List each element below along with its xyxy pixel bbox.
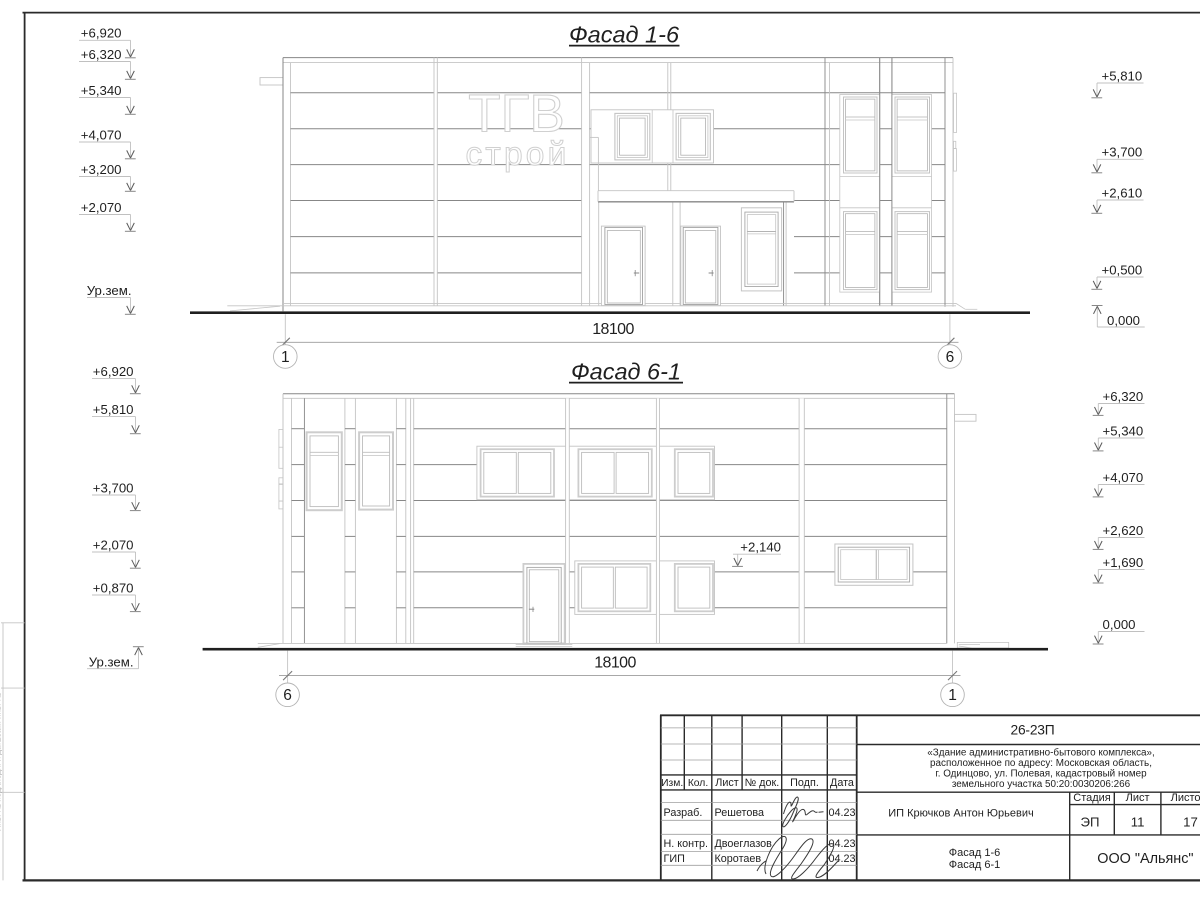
svg-text:Фасад 6-1: Фасад 6-1 <box>949 859 1000 871</box>
svg-text:Стадия: Стадия <box>1073 792 1111 804</box>
svg-text:04.23: 04.23 <box>828 853 855 865</box>
svg-text:+2,620: +2,620 <box>1103 523 1144 538</box>
svg-text:ТГВ: ТГВ <box>468 85 564 144</box>
svg-text:0,000: 0,000 <box>1103 617 1136 632</box>
svg-text:6: 6 <box>283 687 292 704</box>
svg-text:Изм.: Изм. <box>661 778 683 789</box>
svg-text:+6,320: +6,320 <box>1103 389 1144 404</box>
svg-text:Коротаев: Коротаев <box>715 853 762 865</box>
svg-text:Подп. и дата: Подп. и дата <box>0 737 3 785</box>
svg-text:+2,610: +2,610 <box>1102 185 1143 200</box>
svg-text:1: 1 <box>948 687 957 704</box>
svg-text:+4,070: +4,070 <box>81 127 122 142</box>
svg-text:Дата: Дата <box>830 777 854 789</box>
svg-text:строй: строй <box>465 136 569 173</box>
svg-text:+5,810: +5,810 <box>93 402 134 417</box>
svg-text:г. Одинцово, ул. Полевая, када: г. Одинцово, ул. Полевая, кадастровый но… <box>935 768 1147 779</box>
svg-text:11: 11 <box>1131 814 1145 829</box>
svg-text:+5,340: +5,340 <box>1103 423 1144 438</box>
svg-text:+3,700: +3,700 <box>93 480 134 495</box>
svg-text:0,000: 0,000 <box>1107 313 1140 328</box>
svg-text:Двоеглазов: Двоеглазов <box>715 838 773 850</box>
svg-text:Лист: Лист <box>715 777 739 789</box>
svg-text:земельного участка 50:20:00302: земельного участка 50:20:0030206:266 <box>952 779 1131 790</box>
svg-text:04.23: 04.23 <box>828 807 855 819</box>
svg-text:+2,070: +2,070 <box>81 200 122 215</box>
svg-text:18100: 18100 <box>592 321 634 338</box>
svg-text:ЭП: ЭП <box>1081 814 1100 829</box>
svg-text:Взам. инв. №: Взам. инв. № <box>0 692 3 742</box>
svg-text:Фасад 1-6: Фасад 1-6 <box>949 847 1000 859</box>
svg-text:+6,920: +6,920 <box>93 364 134 379</box>
svg-text:26-23П: 26-23П <box>1010 722 1054 737</box>
svg-text:+1,690: +1,690 <box>1103 555 1144 570</box>
svg-text:+2,140: +2,140 <box>740 539 781 554</box>
svg-text:Лист: Лист <box>1126 792 1150 804</box>
svg-text:расположенное по адресу: Моско: расположенное по адресу: Московская обла… <box>930 758 1152 769</box>
svg-text:Кол.: Кол. <box>688 778 708 789</box>
svg-text:Фасад 6-1: Фасад 6-1 <box>571 359 681 385</box>
svg-text:ИП Крючков Антон Юрьевич: ИП Крючков Антон Юрьевич <box>888 807 1033 819</box>
svg-text:ООО "Альянс": ООО "Альянс" <box>1097 851 1193 867</box>
svg-text:+6,320: +6,320 <box>81 47 122 62</box>
svg-text:Подп.: Подп. <box>790 777 819 789</box>
svg-text:Ур.зем.: Ур.зем. <box>89 654 134 669</box>
svg-text:17: 17 <box>1183 814 1198 829</box>
svg-text:«Здание административно-бытово: «Здание административно-бытового комплек… <box>927 747 1155 758</box>
svg-text:ГИП: ГИП <box>664 853 685 865</box>
svg-text:+2,070: +2,070 <box>93 537 134 552</box>
svg-text:Разраб.: Разраб. <box>664 807 703 819</box>
svg-text:Решетова: Решетова <box>715 807 765 819</box>
svg-text:Листов: Листов <box>1171 792 1200 804</box>
svg-text:Ур.зем.: Ур.зем. <box>87 283 132 298</box>
svg-text:+5,340: +5,340 <box>81 83 122 98</box>
svg-text:+4,070: +4,070 <box>1103 470 1144 485</box>
svg-text:+3,700: +3,700 <box>1102 145 1143 160</box>
svg-text:№ док.: № док. <box>745 777 780 789</box>
svg-text:+5,810: +5,810 <box>1102 68 1143 83</box>
svg-text:+0,870: +0,870 <box>93 580 134 595</box>
svg-text:+6,920: +6,920 <box>81 26 122 41</box>
svg-text:6: 6 <box>946 349 955 366</box>
svg-text:+3,200: +3,200 <box>81 162 122 177</box>
svg-text:Инв. № подл.: Инв. № подл. <box>0 781 3 831</box>
svg-text:Фасад 1-6: Фасад 1-6 <box>569 22 680 48</box>
svg-text:+0,500: +0,500 <box>1102 262 1143 277</box>
svg-text:Н. контр.: Н. контр. <box>664 838 709 850</box>
svg-text:1: 1 <box>281 349 290 366</box>
svg-text:18100: 18100 <box>594 654 636 671</box>
